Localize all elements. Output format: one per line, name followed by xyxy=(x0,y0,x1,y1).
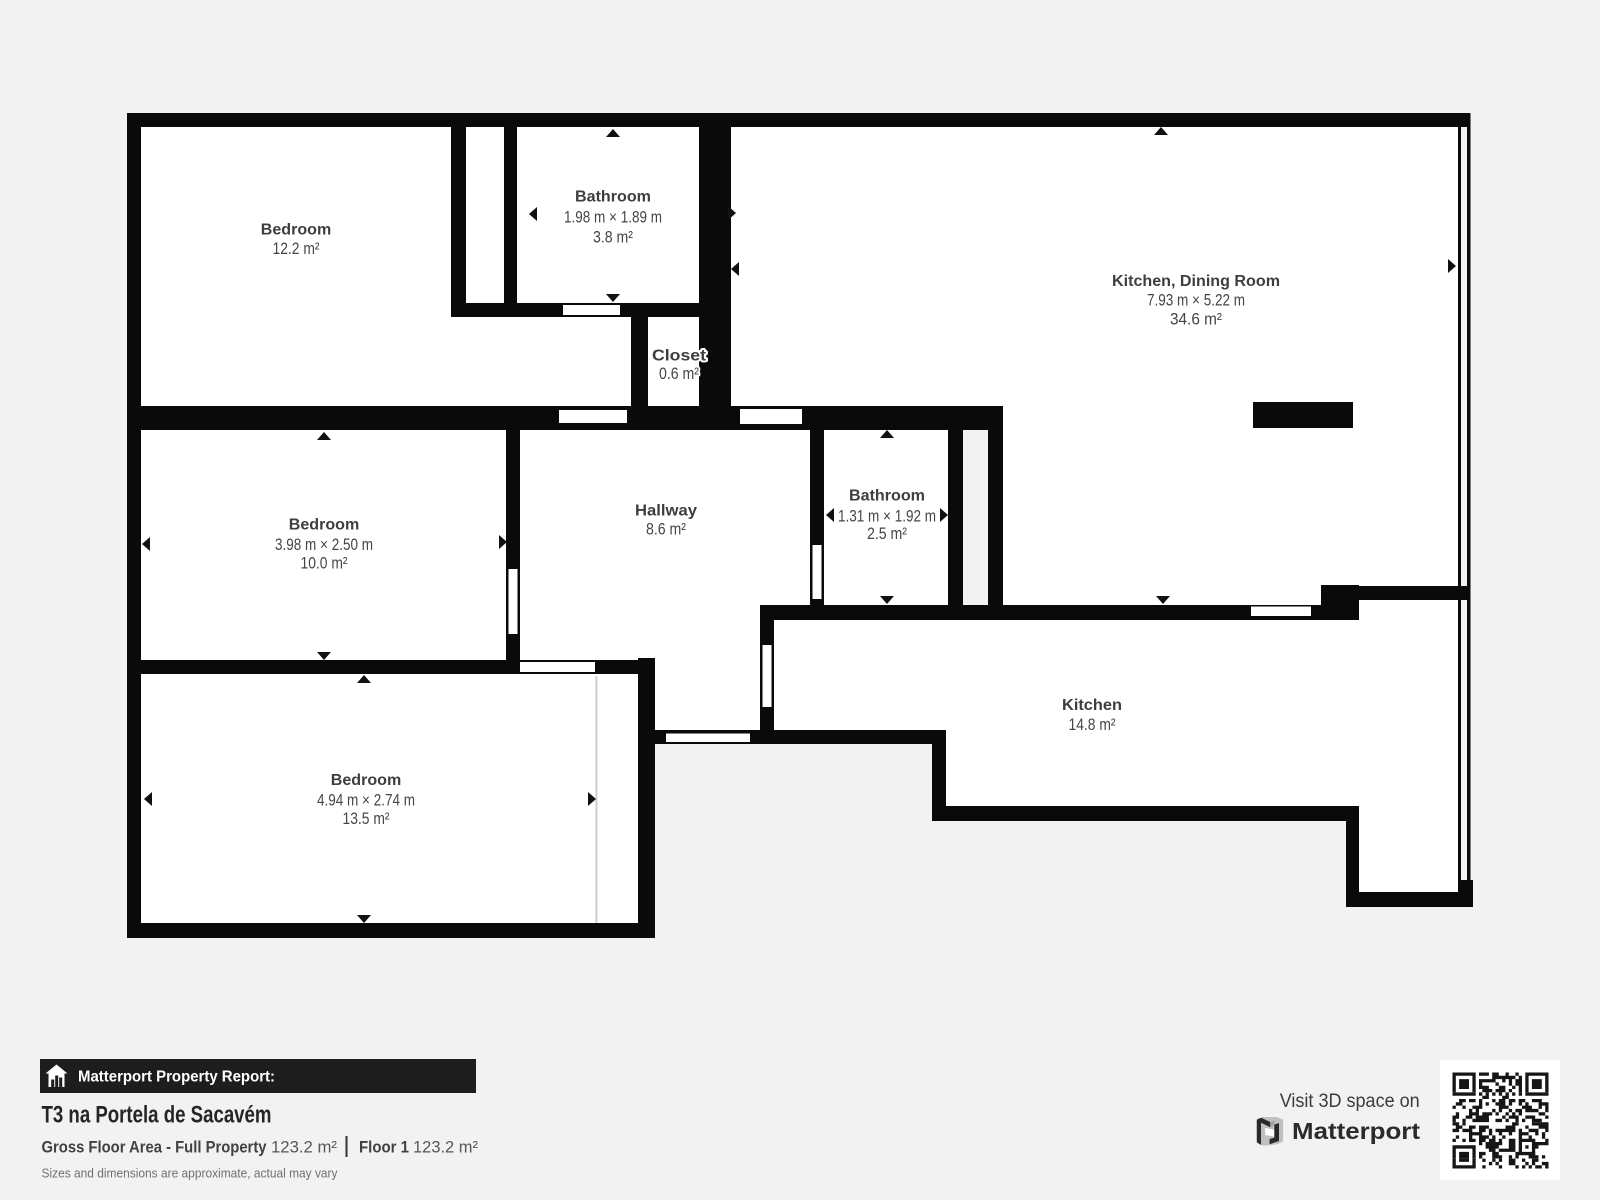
svg-text:123.2 m²: 123.2 m² xyxy=(271,1138,338,1156)
svg-text:3.98 m × 2.50 m: 3.98 m × 2.50 m xyxy=(275,536,373,554)
svg-text:34.6 m²: 34.6 m² xyxy=(1170,311,1222,329)
svg-text:Closet: Closet xyxy=(652,348,707,365)
svg-text:Floor 1: Floor 1 xyxy=(359,1138,409,1156)
svg-text:Bedroom: Bedroom xyxy=(261,222,332,239)
svg-text:T3 na Portela de Sacavém: T3 na Portela de Sacavém xyxy=(42,1102,272,1129)
svg-text:8.6 m²: 8.6 m² xyxy=(646,521,686,539)
svg-text:7.93 m × 5.22 m: 7.93 m × 5.22 m xyxy=(1147,292,1245,310)
svg-text:Matterport Property Report:: Matterport Property Report: xyxy=(78,1069,275,1086)
svg-text:0.6 m²: 0.6 m² xyxy=(659,365,699,383)
svg-text:3.8 m²: 3.8 m² xyxy=(593,229,633,247)
svg-text:12.2 m²: 12.2 m² xyxy=(273,240,320,258)
svg-text:Bathroom: Bathroom xyxy=(575,189,651,206)
svg-text:1.31 m × 1.92 m: 1.31 m × 1.92 m xyxy=(838,508,936,526)
svg-text:Visit 3D space on: Visit 3D space on xyxy=(1280,1091,1420,1112)
svg-text:10.0 m²: 10.0 m² xyxy=(301,555,348,573)
svg-text:Matterport: Matterport xyxy=(1292,1118,1420,1144)
svg-text:Hallway: Hallway xyxy=(635,503,697,520)
svg-text:Gross Floor Area - Full Proper: Gross Floor Area - Full Property xyxy=(42,1138,268,1156)
svg-text:Kitchen, Dining Room: Kitchen, Dining Room xyxy=(1112,273,1280,290)
svg-text:Bedroom: Bedroom xyxy=(289,517,360,534)
svg-text:Kitchen: Kitchen xyxy=(1062,697,1122,714)
svg-text:2.5 m²: 2.5 m² xyxy=(867,525,907,543)
svg-text:Sizes and dimensions are appro: Sizes and dimensions are approximate, ac… xyxy=(42,1166,338,1181)
svg-text:123.2 m²: 123.2 m² xyxy=(413,1138,478,1156)
svg-text:Bedroom: Bedroom xyxy=(331,772,402,789)
svg-text:Bathroom: Bathroom xyxy=(849,488,925,505)
svg-text:4.94 m × 2.74 m: 4.94 m × 2.74 m xyxy=(317,791,415,809)
svg-text:1.98 m × 1.89 m: 1.98 m × 1.89 m xyxy=(564,209,662,227)
svg-text:14.8 m²: 14.8 m² xyxy=(1069,716,1116,734)
svg-text:13.5 m²: 13.5 m² xyxy=(343,810,390,828)
